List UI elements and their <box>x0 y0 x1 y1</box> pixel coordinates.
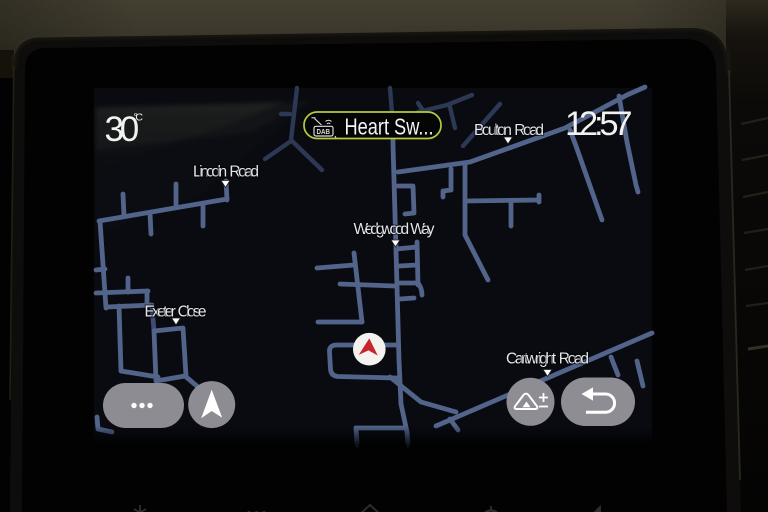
svg-text:Wedgwood Way: Wedgwood Way <box>354 221 435 238</box>
svg-text:12:57: 12:57 <box>565 105 633 143</box>
svg-text:°C: °C <box>134 112 144 124</box>
svg-text:Lincoln Road: Lincoln Road <box>193 164 259 181</box>
svg-text:Cartwright Road: Cartwright Road <box>506 351 589 368</box>
svg-text:Heart Sw...: Heart Sw... <box>345 114 434 140</box>
svg-text:Boulton Road: Boulton Road <box>474 122 544 139</box>
svg-text:DAB: DAB <box>317 127 331 136</box>
